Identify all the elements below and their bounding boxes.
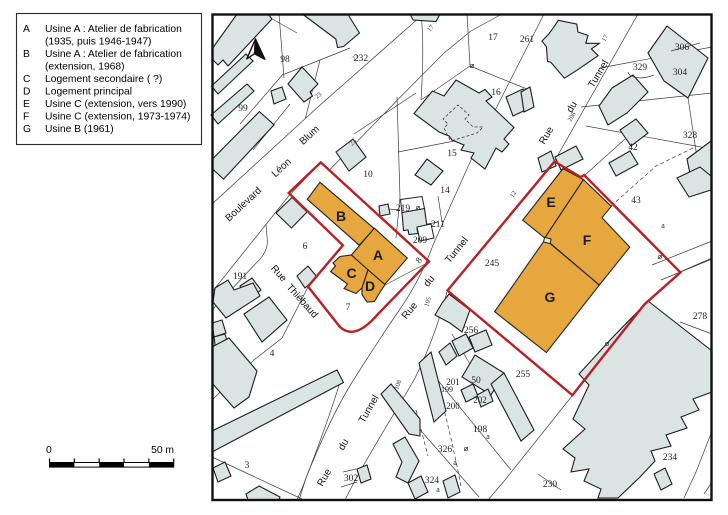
svg-text:230: 230 [543, 480, 558, 490]
svg-text:G: G [23, 124, 31, 135]
svg-text:B: B [23, 49, 30, 60]
svg-text:219: 219 [396, 204, 411, 214]
svg-text:99: 99 [238, 104, 248, 114]
svg-text:234: 234 [663, 453, 678, 463]
svg-text:261: 261 [520, 35, 535, 45]
svg-text:191: 191 [233, 272, 248, 282]
svg-text:(extension, 1968): (extension, 1968) [45, 62, 125, 73]
svg-text:4: 4 [270, 349, 275, 359]
svg-text:10: 10 [363, 170, 373, 180]
svg-text:278: 278 [693, 312, 708, 322]
svg-text:E: E [546, 194, 555, 210]
svg-text:200: 200 [446, 401, 460, 411]
svg-text:245: 245 [485, 259, 500, 269]
svg-text:43: 43 [631, 196, 641, 206]
svg-text:199: 199 [441, 385, 453, 394]
svg-text:D: D [23, 87, 30, 98]
svg-text:3: 3 [245, 461, 250, 471]
svg-text:C: C [346, 265, 356, 281]
svg-text:7: 7 [346, 303, 351, 313]
svg-text:202: 202 [473, 395, 487, 405]
svg-text:F: F [583, 232, 592, 248]
svg-text:17: 17 [488, 33, 498, 43]
svg-text:(1935, puis 1946-1947): (1935, puis 1946-1947) [45, 37, 151, 48]
svg-text:50 m: 50 m [151, 445, 174, 456]
svg-text:328: 328 [683, 131, 698, 141]
svg-text:6: 6 [303, 242, 308, 252]
svg-text:Usine A : Atelier de fabricati: Usine A : Atelier de fabrication [45, 24, 182, 35]
svg-text:329: 329 [633, 63, 648, 73]
svg-text:42: 42 [628, 143, 638, 153]
svg-text:209: 209 [413, 236, 428, 246]
svg-text:B: B [336, 208, 346, 224]
svg-text:50: 50 [471, 376, 481, 386]
svg-text:D: D [365, 278, 375, 294]
svg-text:Usine C (extension, vers 1990): Usine C (extension, vers 1990) [45, 99, 186, 110]
svg-text:15: 15 [447, 149, 457, 159]
svg-text:a: a [436, 485, 440, 494]
svg-text:a: a [661, 221, 665, 230]
svg-text:326: 326 [438, 445, 453, 455]
svg-text:Logement secondaire ( ?): Logement secondaire ( ?) [45, 74, 162, 85]
svg-text:304: 304 [673, 68, 688, 78]
svg-text:A: A [23, 24, 30, 35]
svg-text:F: F [23, 112, 29, 123]
svg-text:Logement principal: Logement principal [45, 87, 132, 98]
svg-text:G: G [545, 289, 556, 305]
svg-text:255: 255 [516, 370, 531, 380]
svg-text:Usine A : Atelier de fabricati: Usine A : Atelier de fabrication [45, 49, 182, 60]
svg-text:A: A [373, 247, 383, 263]
svg-text:0: 0 [46, 445, 52, 456]
svg-text:256: 256 [464, 326, 479, 336]
svg-text:98: 98 [280, 55, 290, 65]
svg-text:E: E [23, 99, 30, 110]
svg-text:198: 198 [473, 425, 488, 435]
svg-text:a: a [453, 458, 457, 467]
svg-text:211: 211 [431, 220, 445, 230]
svg-text:Usine B (1961): Usine B (1961) [45, 124, 114, 135]
svg-text:16: 16 [491, 88, 501, 98]
svg-text:14: 14 [440, 186, 450, 196]
svg-text:C: C [23, 74, 31, 85]
svg-text:Usine C (extension, 1973-1974): Usine C (extension, 1973-1974) [45, 112, 190, 123]
svg-text:a: a [486, 432, 490, 441]
